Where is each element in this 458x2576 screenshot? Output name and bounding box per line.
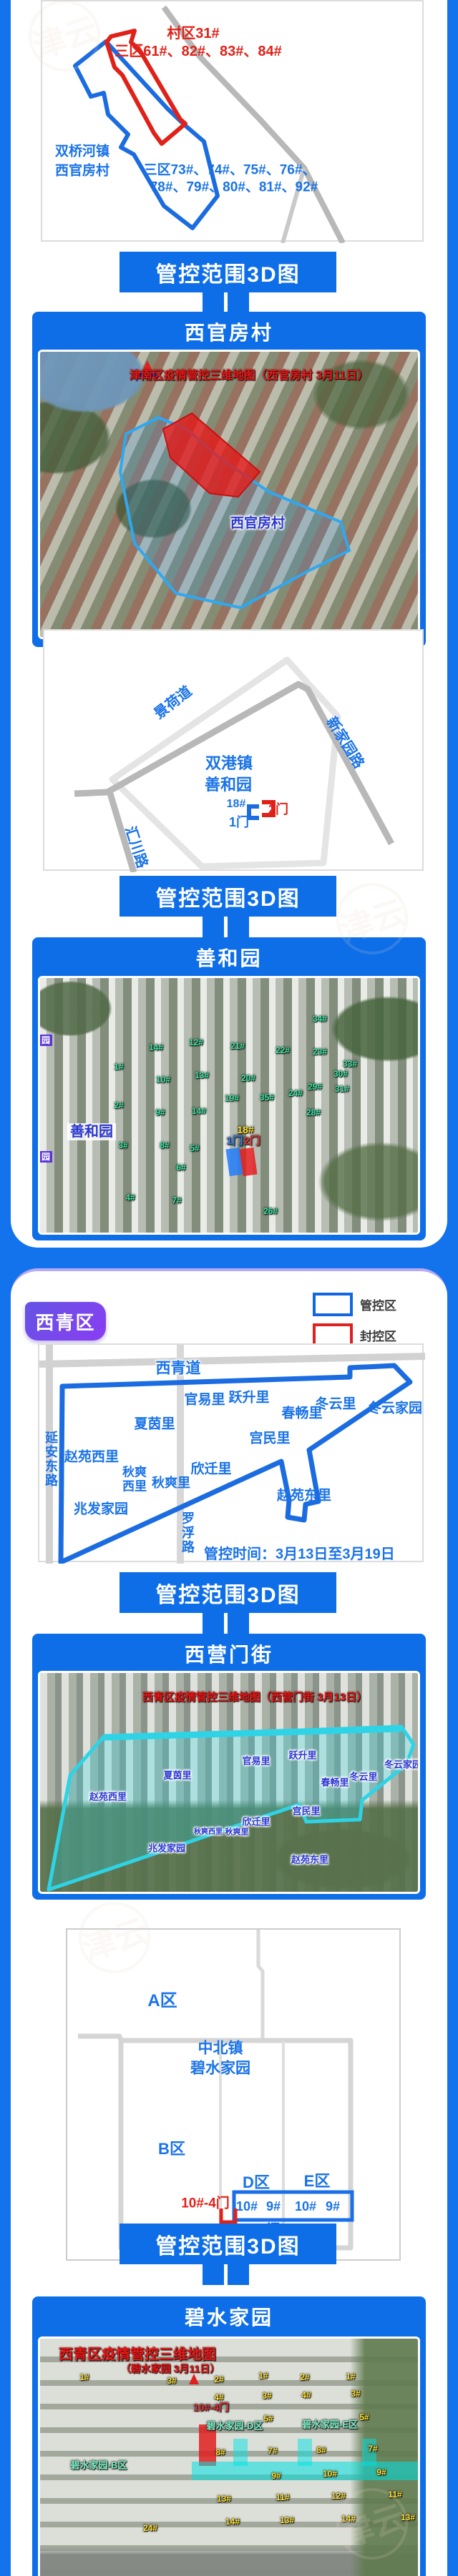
plan-label: 官易里 [184,1393,225,1407]
building-number-label: 29# [308,1082,322,1091]
satellite-label: 冬云家园 [384,1760,420,1770]
plan-labels: A区中北镇碧水家园B区D区E区10#-4门10#9#10#9#1、2、3门 [67,1930,399,2259]
plan-labels: 西青道官易里跃升里春畅里冬云里冬云家园夏茵里宫民里赵苑西里秋爽西里秋爽里欣迁里赵… [39,1345,422,1561]
building-number-label: 20# [241,1074,255,1082]
legend-label: 管控区 [360,1296,396,1313]
frame-title: 碧水家园 [32,2296,426,2336]
building-number-label: 12# [331,2492,346,2500]
plan-label: 景荷道 [152,684,195,722]
frame-title: 西营门街 [32,1634,426,1674]
plan-label: 赵苑东里 [277,1489,331,1503]
plan-label: 9# [266,2200,281,2213]
plan-label: 冬云家园 [368,1402,422,1416]
plan-label: 西里 [122,1481,147,1493]
plan-label: 兆发家园 [74,1503,128,1516]
satellite-label: 跃升里 [288,1751,316,1760]
plan-label: 西青道 [156,1361,201,1376]
building-number-label: 2# [114,1101,123,1110]
purple-tag: 园 [39,1035,52,1046]
satellite-label: 宫民里 [292,1807,320,1816]
plan-label: 宫民里 [249,1432,290,1446]
building-number-label: 22# [276,1046,290,1055]
building-number-labels: 34#14#12#21#22#23#1#10#13#20#33#2#9#14#1… [40,978,418,1233]
frame-title: 善和园 [32,937,426,977]
plan-label: 三区61#、82#、83#、84# [114,44,281,59]
building-number-label: 5# [263,2414,273,2423]
building-number-label: 11# [276,2493,289,2502]
building-number-label: 24# [143,2524,157,2532]
plan-label: 三区73#、74#、75#、76#、 [144,164,316,177]
building-number-label: 19# [225,1094,239,1102]
building-number-label: 23# [313,1047,327,1056]
building-number-label: 3# [118,1141,127,1150]
satellite-xiguanfang: 津南区疫情管控三维地图（西官房村 3月11日） 西官房村 [38,350,420,639]
satellite-labels: 赵苑西里夏茵里官易里跃升里春畅里冬云里冬云家园宫民里欣迁里秋爽西里秋爽里兆发家园… [40,1673,418,1892]
unit-label: 18# [237,1125,253,1135]
banner-3d-map: 管控范围3D图 [120,1572,336,1613]
estate-name-label: 善和园 [67,1123,116,1140]
building-number-label: 13# [217,2494,231,2503]
banner-3d-map: 管控范围3D图 [120,876,336,917]
building-number-label: 10# [323,2469,337,2478]
3d-frame-xiyingmen: 西营门街 西青区疫情管控三维地图（西营门街 3月13日） 赵苑西里夏茵里官易里跃… [32,1634,426,1900]
infographic-page: 津云 津云 津云 津云 村区31#三区61#、82#、83#、84#双桥河镇西官… [0,0,458,2576]
satellite-label: 秋爽里 [225,1829,249,1837]
plan-label: 2门 [268,803,288,816]
plan-label: 9# [326,2200,340,2213]
plan-label: A区 [147,1993,177,2010]
satellite-label: 赵苑东里 [291,1855,328,1865]
plan-label: 夏茵里 [134,1418,175,1431]
building-number-label: 26# [263,1207,278,1215]
frame-title: 西官房村 [32,312,426,352]
plan-label: 碧水家园 [190,2061,250,2076]
building-number-label: 9# [155,1108,165,1117]
satellite-label: 西官房村 [230,517,285,531]
connector [203,1613,249,1634]
3d-frame-xiguanfang: 西官房村 津南区疫情管控三维地图（西官房村 3月11日） 西官房村 [32,312,426,647]
building-number-label: 4# [301,2391,311,2399]
plan-label: 10# [295,2200,316,2213]
building-number-label: 7# [268,2447,277,2455]
building-number-label: 21# [230,1042,245,1050]
plan-label: E区 [304,2173,331,2189]
building-number-label: 4# [125,1193,135,1202]
control-zone-swatch [313,1293,353,1316]
legend-label: 封控区 [360,1326,396,1344]
building-number-label: 12# [189,1038,203,1047]
plan-map-xiyingmen: 西青道官易里跃升里春畅里冬云里冬云家园夏茵里宫民里赵苑西里秋爽西里秋爽里欣迁里赵… [38,1343,424,1562]
plan-label: 18# [227,799,246,810]
plan-label: 中北镇 [198,2041,243,2056]
plan-label: 秋爽里 [152,1476,190,1489]
satellite-label: 冬云里 [349,1772,377,1782]
building-number-label: 5# [190,1144,199,1153]
satellite-label: 官易里 [242,1757,270,1766]
building-number-label: 14# [192,1107,206,1115]
plan-label: D区 [243,2175,270,2191]
building-number-label: 5# [359,2413,369,2422]
building-number-label: 24# [288,1089,303,1097]
building-number-label: 13# [280,2516,294,2525]
banner-3d-map: 管控范围3D图 [120,2224,336,2264]
plan-label: B区 [158,2141,185,2157]
building-number-label: 1# [79,2373,89,2382]
plan-label: 秋爽 [122,1466,147,1479]
plan-map-shanheyuan: 景荷道新家园路汇川路双港镇善和园18#1门2门 [43,629,424,871]
plan-map-bishui: A区中北镇碧水家园B区D区E区10#-4门10#9#10#9#1、2、3门 [66,1928,401,2261]
gate2-label: 2门 [243,1136,260,1147]
building-number-label: 35# [260,1093,274,1102]
building-number-label: 10# [156,1075,170,1084]
plan-label: 冬云里 [315,1398,356,1411]
building-number-label: 6# [176,1163,185,1172]
plan-labels: 村区31#三区61#、82#、83#、84#双桥河镇西官房村三区73#、74#、… [42,1,422,240]
building-number-label: 28# [306,1108,321,1117]
building-number-label: 1# [346,2372,355,2381]
satellite-label: 夏茵里 [163,1771,191,1780]
plan-labels: 景荷道新家园路汇川路双港镇善和园18#1门2门 [44,631,422,869]
plan-label: 善和园 [205,777,252,793]
building-number-label: 2# [214,2375,223,2384]
plan-label: 双港镇 [205,756,253,771]
building-number-label: 13# [195,1071,209,1080]
building-number-label: 14# [341,2515,356,2523]
plan-label: 赵苑西里 [64,1451,119,1464]
building-number-label: 7# [368,2444,377,2453]
building-number-label: 34# [313,1015,327,1023]
building-number-label: 8# [215,2448,225,2457]
building-number-label: 8# [316,2446,326,2454]
plan-label: 欣迁里 [190,1463,231,1476]
building-number-labels: 1#3#2#1#2#1#4#3#4#3#5#5#8#7#8#7#9#10#9#1… [40,2339,418,2576]
satellite-label: 欣迁里 [242,1817,270,1827]
plan-label: 10#-4门 [181,2197,230,2211]
satellite-label: 赵苑西里 [89,1792,127,1802]
building-number-label: 11# [388,2490,401,2499]
plan-label: 双桥河镇 [55,145,109,159]
legend-item-control: 管控区 [313,1293,427,1316]
building-number-label: 13# [401,2513,415,2522]
plan-label: 村区31# [167,26,219,41]
connector [203,917,249,937]
plan-label: 西官房村 [55,164,109,178]
building-number-label: 1# [258,2372,268,2380]
3d-frame-shanheyuan: 善和园 34#14#12#21#22#23#1#10#13#20#33#2#9#… [32,937,426,1240]
building-number-label: 9# [376,2468,386,2477]
plan-label: 10# [236,2200,258,2213]
district-tab: 西青区 [25,1302,106,1341]
plan-label: 新家园路 [323,715,366,771]
connector [203,292,249,313]
plan-map-xiguanfang: 村区31#三区61#、82#、83#、84#双桥河镇西官房村三区73#、74#、… [41,0,424,242]
building-number-label: 4# [214,2393,223,2402]
satellite-label: 兆发家园 [148,1844,185,1853]
building-number-label: 2# [300,2373,309,2382]
building-number-label: 3# [351,2389,360,2398]
3d-frame-bishui: 碧水家园 西青区疫情管控三维地图 （碧水家园 3月11日） 10#-4门 碧水家… [32,2296,426,2576]
banner-3d-map: 管控范围3D图 [120,252,336,292]
gate1-label: 1门 [226,1136,243,1147]
satellite-label: 春畅里 [321,1778,349,1787]
plan-label: 1门 [229,816,249,829]
satellite-xiyingmen: 西青区疫情管控三维地图（西营门街 3月13日） 赵苑西里夏茵里官易里跃升里春畅里… [38,1671,420,1894]
building-number-label: 14# [149,1043,163,1052]
building-number-label: 31# [335,1085,349,1093]
plan-label: 延安东路 [44,1431,57,1488]
plan-label: 汇川路 [122,824,150,869]
building-number-label: 3# [167,2377,176,2385]
building-number-label: 33# [343,1060,357,1068]
building-number-label: 8# [160,1141,169,1150]
building-number-label: 7# [172,1196,181,1205]
satellite-bishui: 西青区疫情管控三维地图 （碧水家园 3月11日） 10#-4门 碧水家园-B区碧… [38,2336,420,2576]
control-period: 管控时间：3月13日至3月19日 [204,1542,395,1563]
building-number-label: 1# [114,1062,123,1071]
purple-tag: 园 [39,1151,52,1163]
building-number-label: 3# [262,2392,271,2400]
building-number-label: 30# [333,1070,348,1078]
plan-label: 跃升里 [228,1391,269,1405]
connector [203,2264,249,2285]
satellite-shanheyuan: 34#14#12#21#22#23#1#10#13#20#33#2#9#14#1… [38,976,420,1235]
plan-label: 78#、79#、80#、81#、92# [150,181,318,194]
satellite-labels: 西官房村 [40,352,418,637]
plan-label: 罗浮路 [181,1511,194,1554]
building-number-label: 9# [271,2472,281,2480]
building-number-label: 14# [225,2517,240,2526]
satellite-label: 秋爽西里 [194,1829,223,1836]
